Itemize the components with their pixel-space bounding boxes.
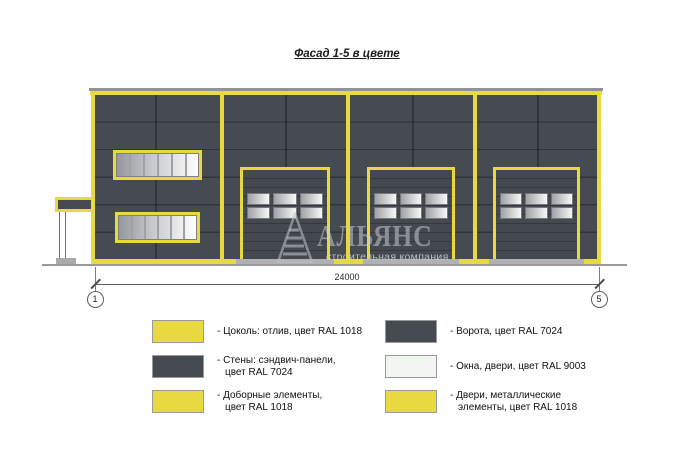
window-mullion <box>183 216 185 239</box>
gate-window-pane <box>273 193 296 205</box>
window-mullion <box>171 154 173 176</box>
dimension-value: 24000 <box>297 272 397 282</box>
gate-window-pane <box>525 207 547 219</box>
window-glazing <box>116 153 199 177</box>
window-mullion <box>143 154 145 176</box>
corner-trim-left <box>91 95 95 259</box>
dimension-line <box>95 284 599 285</box>
legend-label-windows: - Окна, двери, цвет RAL 9003 <box>450 361 625 373</box>
window-mullion <box>157 216 159 239</box>
watermark-logo-icon <box>277 212 313 264</box>
gate-window-pane <box>500 193 522 205</box>
legend-row: - Двери, металлические элементы, цвет RA… <box>385 390 625 413</box>
gate-window-pane <box>551 207 573 219</box>
extension-line-right <box>599 267 600 291</box>
window-mullion <box>157 154 159 176</box>
legend-row: - Окна, двери, цвет RAL 9003 <box>385 355 625 378</box>
corner-trim-right <box>597 95 601 259</box>
axis-divider-trim <box>220 95 224 259</box>
extension-line-left <box>95 267 96 291</box>
gate-window-pane <box>525 193 547 205</box>
axis-divider-trim <box>473 95 477 259</box>
drawing-title: Фасад 1-5 в цвете <box>247 48 447 60</box>
legend-label-doors: - Двери, металлические элементы, цвет RA… <box>450 390 625 413</box>
watermark-brand: АЛЬЯНС <box>317 220 433 251</box>
window-mullion <box>144 216 146 239</box>
drawing-canvas: Фасад 1-5 в цвете <box>0 0 700 474</box>
watermark-tagline: строительная компания <box>326 251 449 263</box>
gate-window-pane <box>551 193 573 205</box>
entrance-canopy <box>55 197 94 212</box>
legend-swatch-walls <box>152 355 204 378</box>
gate-window-pane <box>425 193 448 205</box>
legend-swatch-plinth <box>152 320 204 343</box>
legend-row: - Стены: сэндвич-панели, цвет RAL 7024 <box>152 355 392 378</box>
window-mullion <box>131 216 133 239</box>
legend-row: - Цоколь: отлив, цвет RAL 1018 <box>152 320 392 343</box>
gate-window-pane <box>500 207 522 219</box>
canopy-post <box>59 212 66 262</box>
gate-window-pane <box>247 193 270 205</box>
legend-swatch-doors <box>385 390 437 413</box>
gate-window-pane <box>247 207 270 219</box>
window-mullion <box>170 216 172 239</box>
axis-marker-5: 5 <box>591 291 608 308</box>
gate-window-strip <box>500 193 573 219</box>
legend-label-gates: - Ворота, цвет RAL 7024 <box>450 326 625 338</box>
legend-swatch-gates <box>385 320 437 343</box>
sectional-gate-3 <box>493 167 580 262</box>
gate-window-strip <box>374 193 448 219</box>
legend-row: - Ворота, цвет RAL 7024 <box>385 320 625 343</box>
ribbon-window-lower <box>115 212 200 243</box>
window-glazing <box>118 215 197 240</box>
legend-row: - Доборные элементы, цвет RAL 1018 <box>152 390 392 413</box>
gate-window-pane <box>374 193 397 205</box>
window-mullion <box>129 154 131 176</box>
gate-window-pane <box>300 193 323 205</box>
ground-line <box>42 264 627 266</box>
legend-column-right: - Ворота, цвет RAL 7024 - Окна, двери, ц… <box>385 320 625 425</box>
window-mullion <box>185 154 187 176</box>
legend-swatch-trim <box>152 390 204 413</box>
legend-label-walls: - Стены: сэндвич-панели, цвет RAL 7024 <box>217 355 392 378</box>
axis-marker-1: 1 <box>87 291 104 308</box>
legend-column-left: - Цоколь: отлив, цвет RAL 1018 - Стены: … <box>152 320 392 425</box>
gate-window-pane <box>400 193 423 205</box>
ribbon-window-upper <box>113 150 202 180</box>
legend-swatch-windows <box>385 355 437 378</box>
legend-label-trim: - Доборные элементы, цвет RAL 1018 <box>217 390 392 413</box>
legend-label-plinth: - Цоколь: отлив, цвет RAL 1018 <box>217 326 392 338</box>
